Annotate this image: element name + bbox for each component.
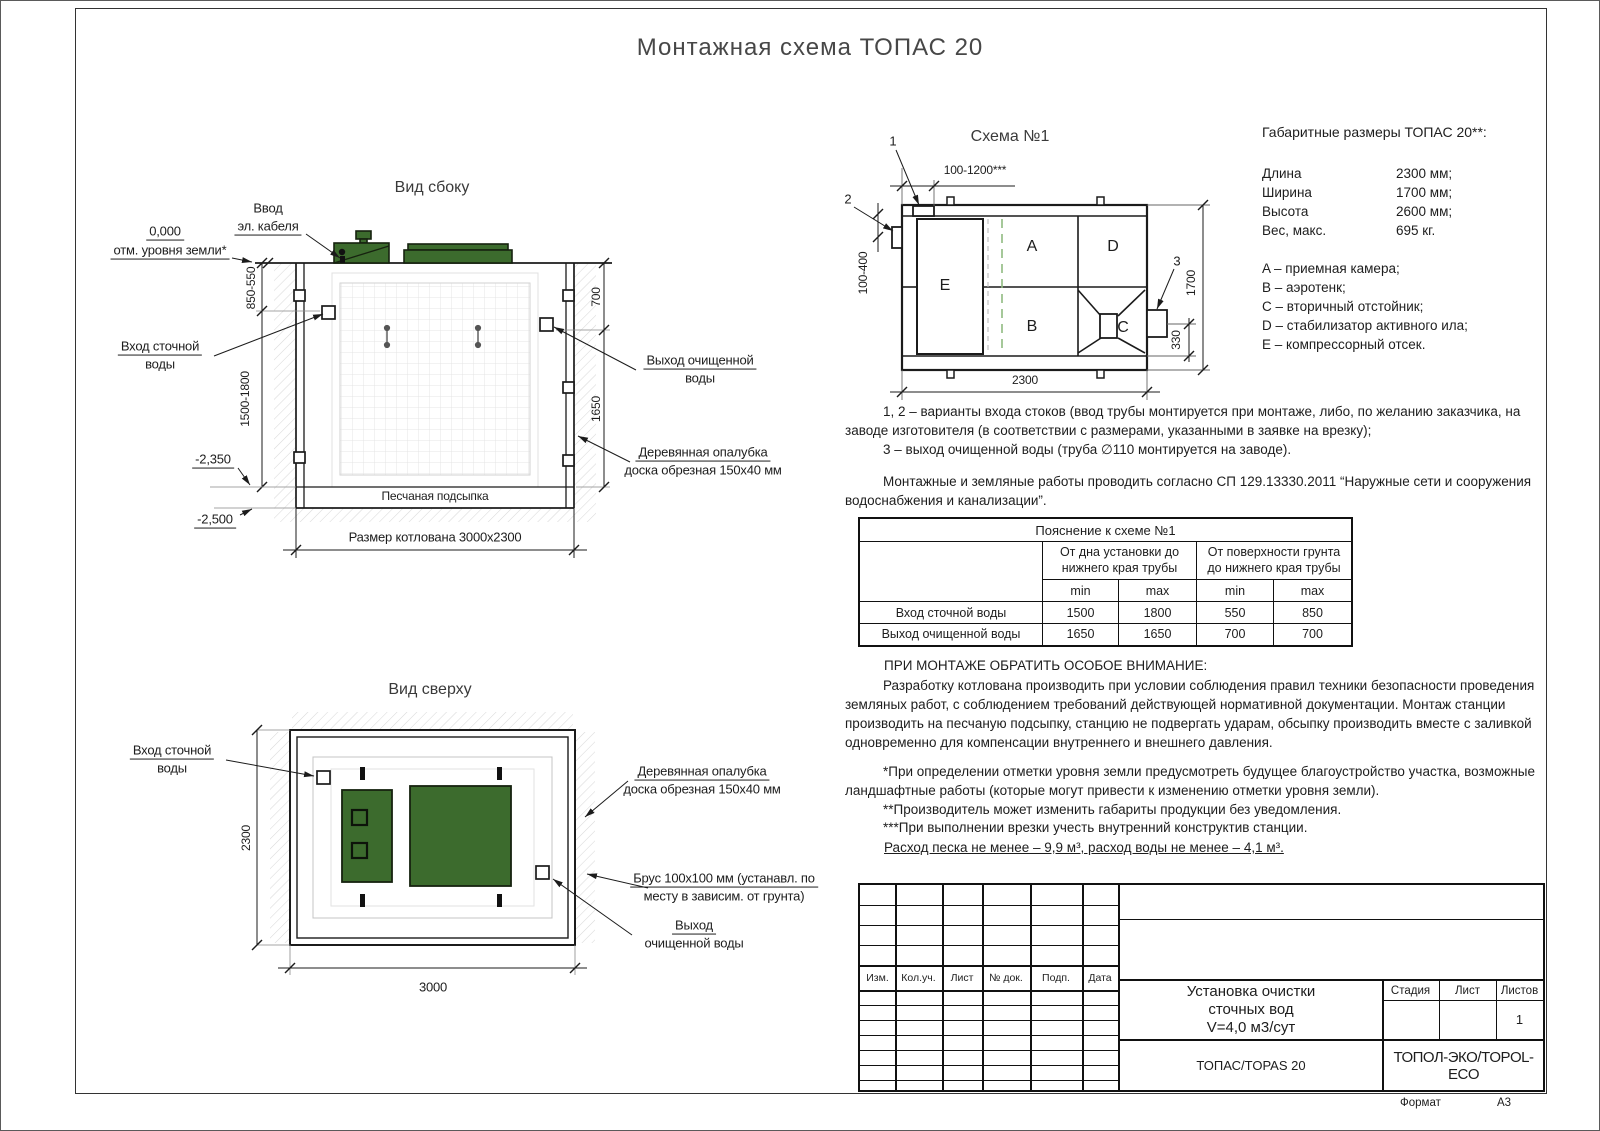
stamp-company: ТОПОЛ-ЭКО/TOPOL-ECO — [1384, 1041, 1543, 1090]
table-row1-label: Вход сточной воды — [859, 602, 1043, 624]
stamp-stage-label: Стадия — [1382, 981, 1439, 1000]
stamp-sheets-label: Листов — [1496, 981, 1543, 1000]
marker-1: 1 — [889, 134, 896, 149]
table-empty-cell — [859, 542, 1043, 602]
top-formwork-label-line2: доска обрезная 150х40 мм — [623, 782, 780, 799]
doc-title-line2: сточных вод — [1208, 1001, 1293, 1019]
stamp-sheets-value: 1 — [1496, 1000, 1543, 1039]
top-view-linework — [226, 712, 648, 975]
legend-d: D – стабилизатор активного ила; — [1262, 318, 1468, 333]
legend-b: B – аэротенк; — [1262, 280, 1346, 295]
ground-level-value: 0,000 — [146, 224, 184, 241]
compartment-a-label: A — [1027, 238, 1038, 256]
side-inlet-label-line1: Вход сточной — [118, 339, 202, 356]
cable-entry-label-line1: Ввод — [253, 201, 282, 218]
footnote-2: **Производитель может изменить габариты … — [845, 800, 1549, 819]
dims-width-label: Ширина — [1262, 185, 1312, 200]
table-group1-header: От дна установки до нижнего края трубы — [1043, 542, 1197, 580]
dims-height-label: Высота — [1262, 204, 1308, 219]
dim-100-400: 100-400 — [856, 252, 870, 295]
footnote-3: ***При выполнении врезки учесть внутренн… — [845, 818, 1549, 837]
attention-heading: ПРИ МОНТАЖЕ ОБРАТИТЬ ОСОБОЕ ВНИМАНИЕ: — [884, 658, 1207, 673]
table-row1-v2: 1800 — [1119, 602, 1197, 624]
table-row: Выход очищенной воды 1650 1650 700 700 — [859, 624, 1352, 646]
format-label: Формат — [1400, 1097, 1441, 1109]
top-outlet-label-line1: Выход — [672, 918, 716, 935]
doc-title-line1: Установка очистки — [1187, 983, 1316, 1001]
doc-title-line3: V=4,0 м3/сут — [1207, 1019, 1295, 1037]
cable-entry-label-line2: эл. кабеля — [234, 219, 301, 236]
table-row2-v4: 700 — [1274, 624, 1353, 646]
table-row1-v4: 850 — [1274, 602, 1353, 624]
level-2350-label: -2,350 — [192, 452, 234, 469]
consumption-note: Расход песка не менее – 9,9 м³, расход в… — [884, 840, 1284, 855]
dim-100-1200: 100-1200*** — [944, 163, 1007, 179]
table-row2-v2: 1650 — [1119, 624, 1197, 646]
side-view-linework — [210, 231, 636, 558]
format-value: А3 — [1497, 1097, 1511, 1109]
schema-linework — [854, 150, 1210, 400]
dims-block-title: Габаритные размеры ТОПАС 20**: — [1262, 124, 1487, 140]
dim-1500-1800: 1500-1800 — [238, 371, 252, 427]
side-outlet-label-line1: Выход очищенной — [643, 353, 756, 370]
explanation-table: Пояснение к схеме №1 От дна установки до… — [858, 517, 1353, 647]
table-row2-v3: 700 — [1197, 624, 1274, 646]
note-variants-1: 1, 2 – варианты входа стоков (ввод трубы… — [845, 402, 1545, 440]
note-sp: Монтажные и земляные работы проводить со… — [845, 472, 1545, 510]
table-group2-header: От поверхности грунта до нижнего края тр… — [1197, 542, 1353, 580]
dim-1650: 1650 — [589, 396, 603, 422]
beam-label-line1: Брус 100х100 мм (устанавл. по — [630, 871, 818, 888]
title-block: Изм. Кол.уч. Лист № док. Подп. Дата Уста… — [858, 883, 1545, 1092]
stamp-col-list: Лист — [942, 965, 982, 990]
sand-bed-label: Песчаная подсыпка — [381, 489, 488, 505]
stamp-col-izm: Изм. — [860, 965, 895, 990]
side-outlet-label-line2: воды — [685, 371, 715, 388]
stamp-col-podp: Подп. — [1030, 965, 1082, 990]
note-variants-2: 3 – выход очищенной воды (труба ∅110 мон… — [845, 440, 1545, 459]
marker-3: 3 — [1173, 254, 1180, 269]
dims-weight-value: 695 кг. — [1396, 223, 1435, 238]
dims-height-value: 2600 мм; — [1396, 204, 1452, 219]
table-max1: max — [1119, 580, 1197, 602]
dims-length-value: 2300 мм; — [1396, 166, 1452, 181]
table-title: Пояснение к схеме №1 — [859, 518, 1352, 542]
table-max2: max — [1274, 580, 1353, 602]
side-formwork-label-line1: Деревянная опалубка — [635, 445, 770, 462]
legend-a: A – приемная камера; — [1262, 261, 1400, 276]
table-row2-v1: 1650 — [1043, 624, 1119, 646]
top-outlet-label-line2: очищенной воды — [644, 936, 743, 953]
top-view-title: Вид сверху — [388, 681, 471, 699]
ground-level-label: отм. уровня земли* — [111, 243, 230, 260]
compartment-c-label: C — [1117, 319, 1129, 337]
dim-2300-top-view: 2300 — [239, 825, 253, 851]
top-inlet-label-line2: воды — [157, 761, 187, 778]
side-view-title: Вид сбоку — [395, 179, 470, 197]
dim-1700: 1700 — [1184, 270, 1198, 296]
marker-2: 2 — [844, 192, 851, 207]
drawing-sheet: Монтажная схема ТОПАС 20 Вид сбоку Ввод … — [0, 0, 1600, 1131]
table-row: Вход сточной воды 1500 1800 550 850 — [859, 602, 1352, 624]
dims-weight-label: Вес, макс. — [1262, 223, 1326, 238]
doc-title: Установка очистки сточных вод V=4,0 м3/с… — [1120, 981, 1382, 1039]
stamp-col-ndok: № док. — [982, 965, 1030, 990]
legend-e: E – компрессорный отсек. — [1262, 337, 1425, 352]
side-view-lids — [334, 231, 512, 263]
beam-label-line2: месту в зависим. от грунта) — [644, 889, 805, 906]
stamp-col-data: Дата — [1082, 965, 1118, 990]
page-title: Монтажная схема ТОПАС 20 — [637, 34, 984, 62]
stamp-sheet-label: Лист — [1439, 981, 1496, 1000]
dims-length-label: Длина — [1262, 166, 1302, 181]
attention-body: Разработку котлована производить при усл… — [845, 676, 1545, 752]
legend-c: C – вторичный отстойник; — [1262, 299, 1423, 314]
compartment-d-label: D — [1107, 238, 1119, 256]
top-formwork-label-line1: Деревянная опалубка — [634, 764, 769, 781]
dims-width-value: 1700 мм; — [1396, 185, 1452, 200]
compartment-b-label: B — [1027, 318, 1038, 336]
side-inlet-label-line2: воды — [145, 357, 175, 374]
dim-3000: 3000 — [419, 980, 447, 997]
top-view-lids — [342, 786, 511, 886]
stamp-col-koluch: Кол.уч. — [895, 965, 942, 990]
level-2500-label: -2,500 — [194, 512, 236, 529]
dim-2300-schema: 2300 — [1012, 373, 1038, 389]
dim-700: 700 — [589, 287, 603, 306]
pit-size-label: Размер котлована 3000х2300 — [349, 530, 522, 547]
top-inlet-label-line1: Вход сточной — [130, 743, 214, 760]
dim-850-550: 850-550 — [244, 267, 258, 310]
table-row2-label: Выход очищенной воды — [859, 624, 1043, 646]
table-min2: min — [1197, 580, 1274, 602]
table-row1-v3: 550 — [1197, 602, 1274, 624]
schema-title: Схема №1 — [971, 128, 1050, 146]
table-row1-v1: 1500 — [1043, 602, 1119, 624]
stamp-model: ТОПАС/TOPAS 20 — [1120, 1041, 1382, 1090]
dim-330: 330 — [1169, 330, 1183, 349]
footnote-1: *При определении отметки уровня земли пр… — [845, 762, 1549, 800]
compartment-e-label: E — [940, 277, 951, 295]
side-formwork-label-line2: доска обрезная 150х40 мм — [624, 463, 781, 480]
table-min1: min — [1043, 580, 1119, 602]
